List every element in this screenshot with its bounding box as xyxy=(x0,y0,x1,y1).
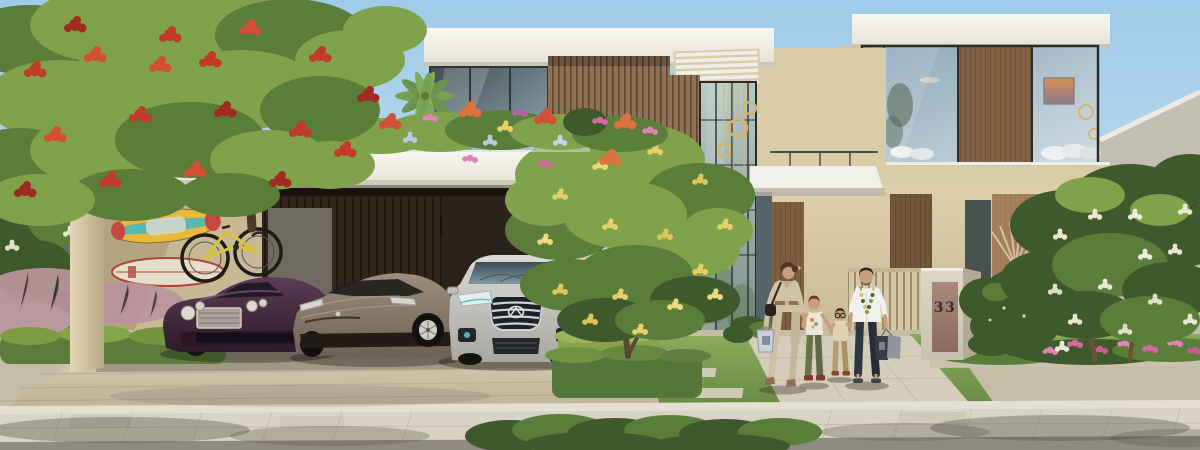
villa-render: 33 xyxy=(0,0,1200,450)
address-plaque xyxy=(932,282,958,352)
address-number: 33 xyxy=(934,300,956,316)
bedroom-artwork xyxy=(1044,78,1074,104)
crossbody-bag xyxy=(765,304,776,316)
bedroom-window xyxy=(862,46,1101,164)
right-roof-fascia xyxy=(852,14,1110,46)
shopping-bag-woman xyxy=(757,327,774,352)
